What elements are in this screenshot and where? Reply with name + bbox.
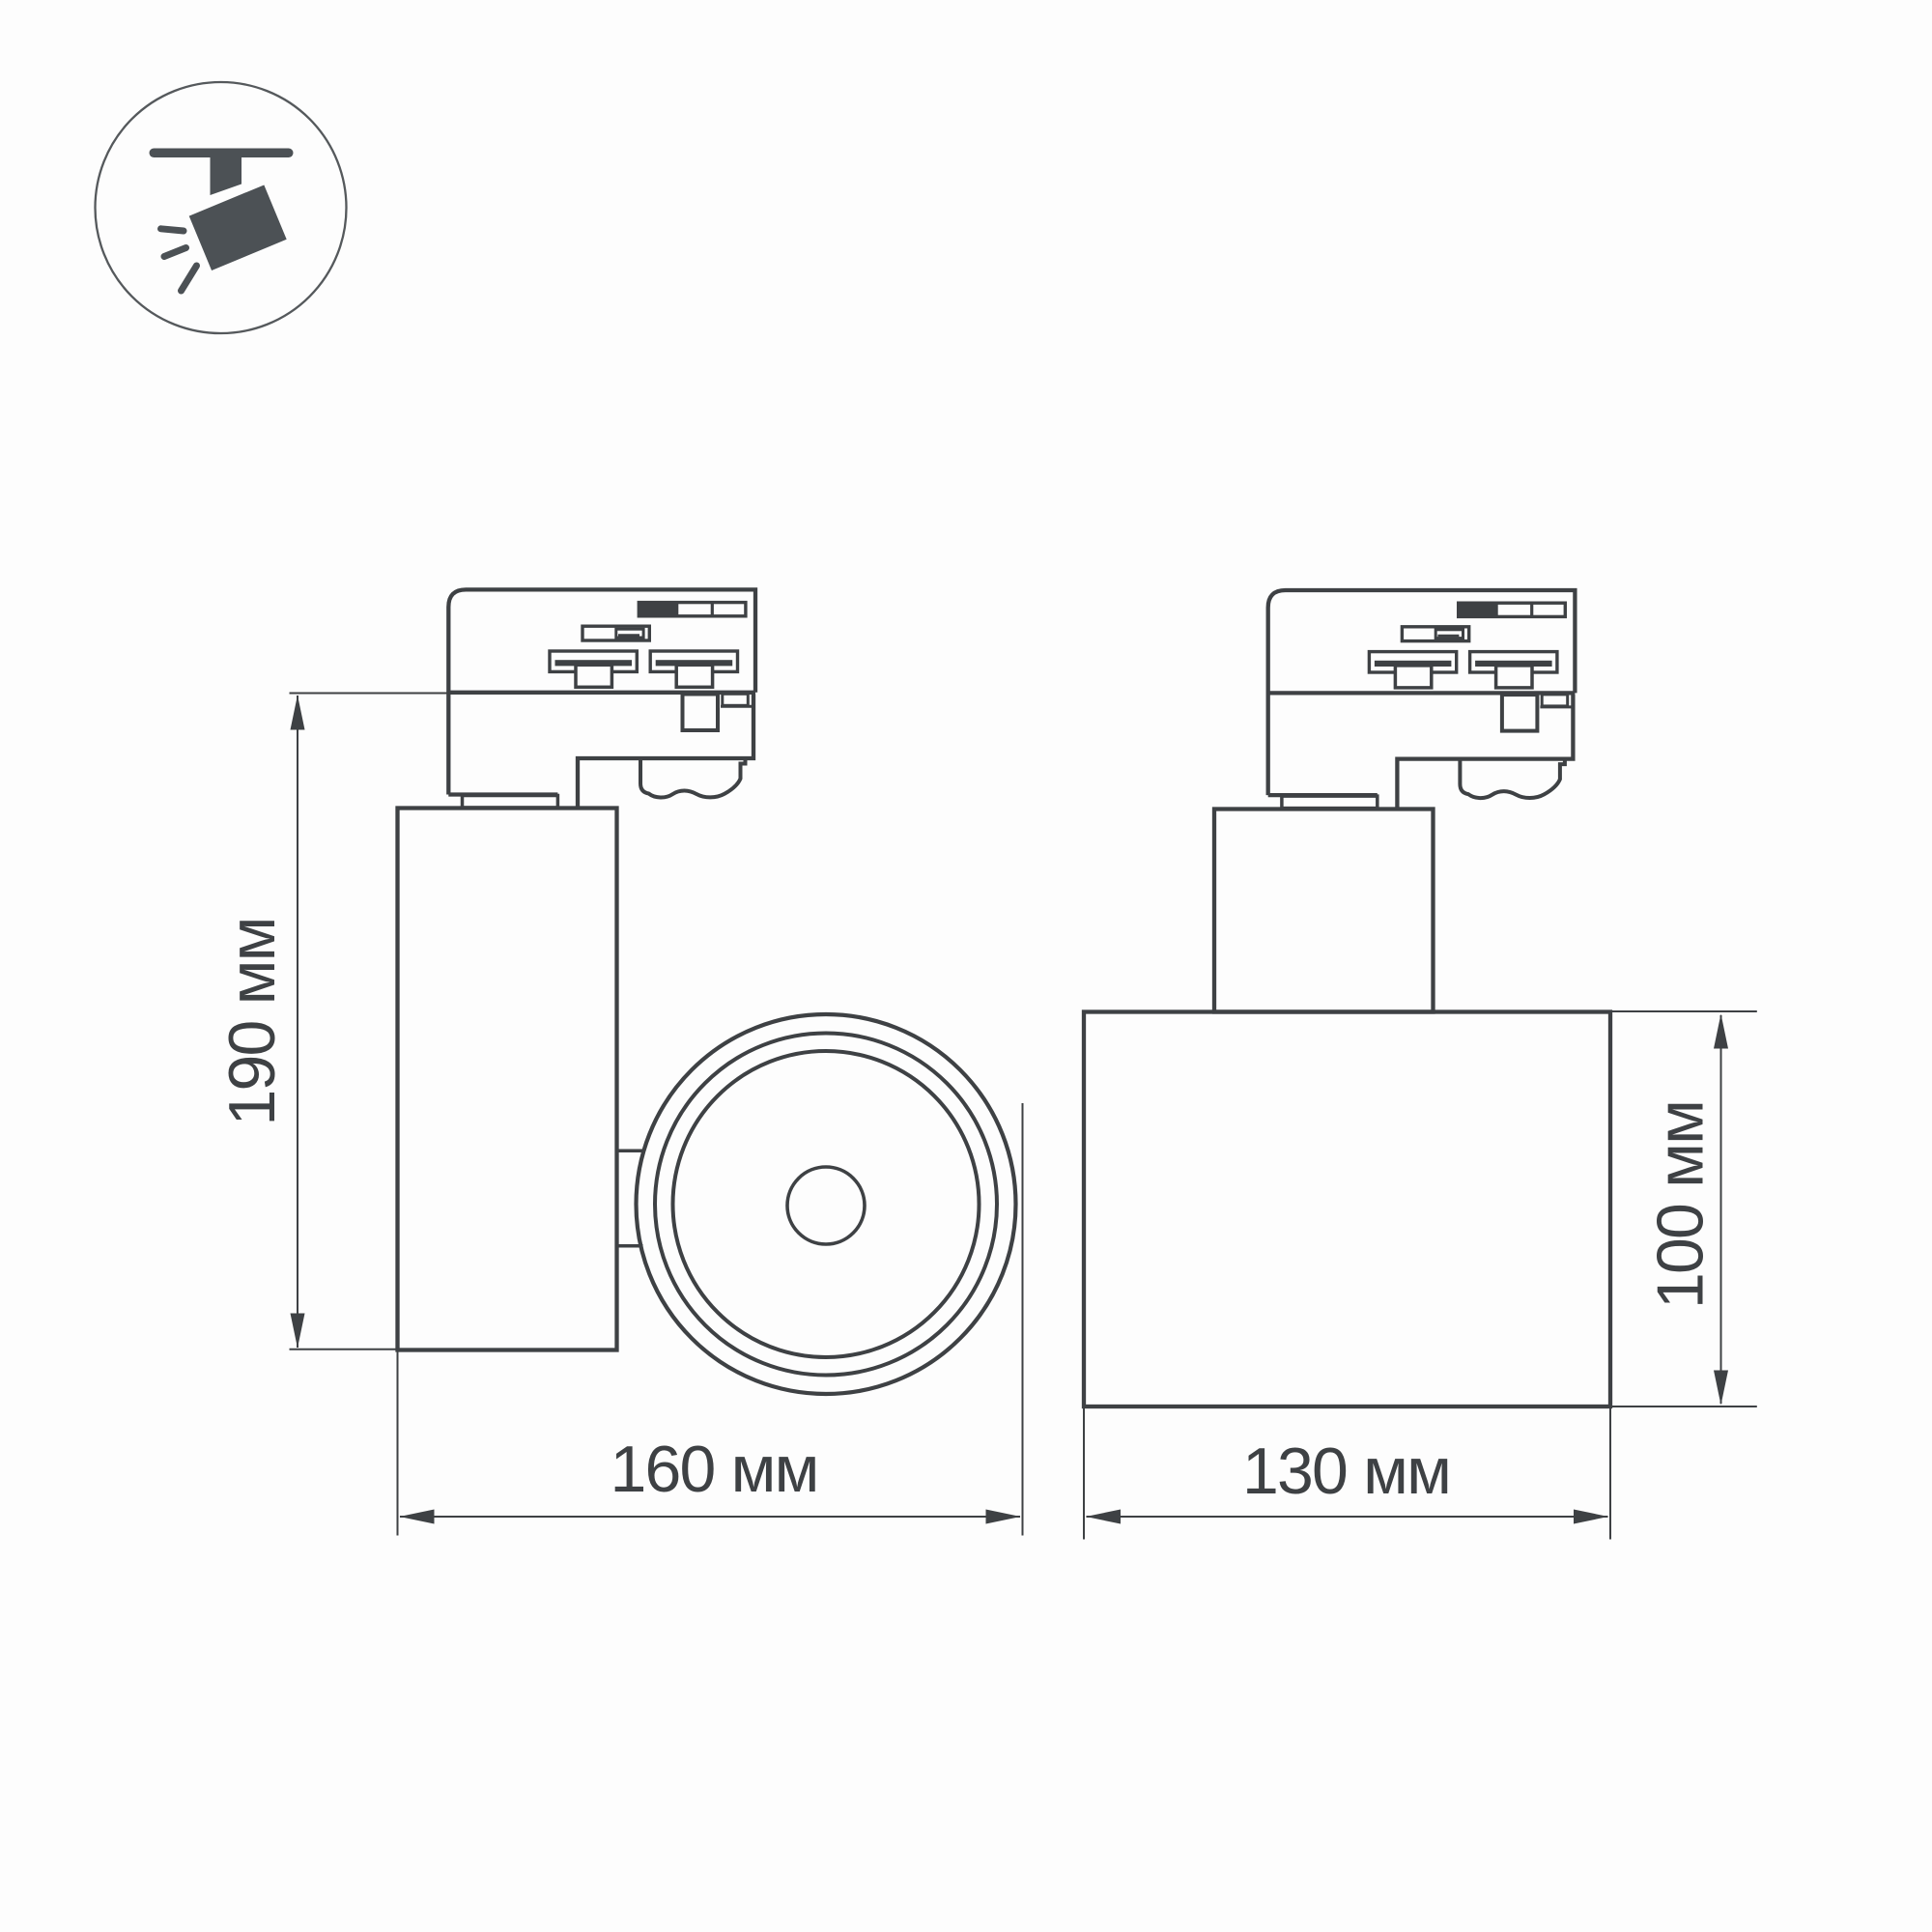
svg-text:160 мм: 160 мм bbox=[610, 1433, 817, 1506]
svg-text:130 мм: 130 мм bbox=[1242, 1435, 1450, 1508]
svg-text:100 мм: 100 мм bbox=[1644, 1101, 1718, 1309]
svg-text:190 мм: 190 мм bbox=[215, 918, 289, 1125]
